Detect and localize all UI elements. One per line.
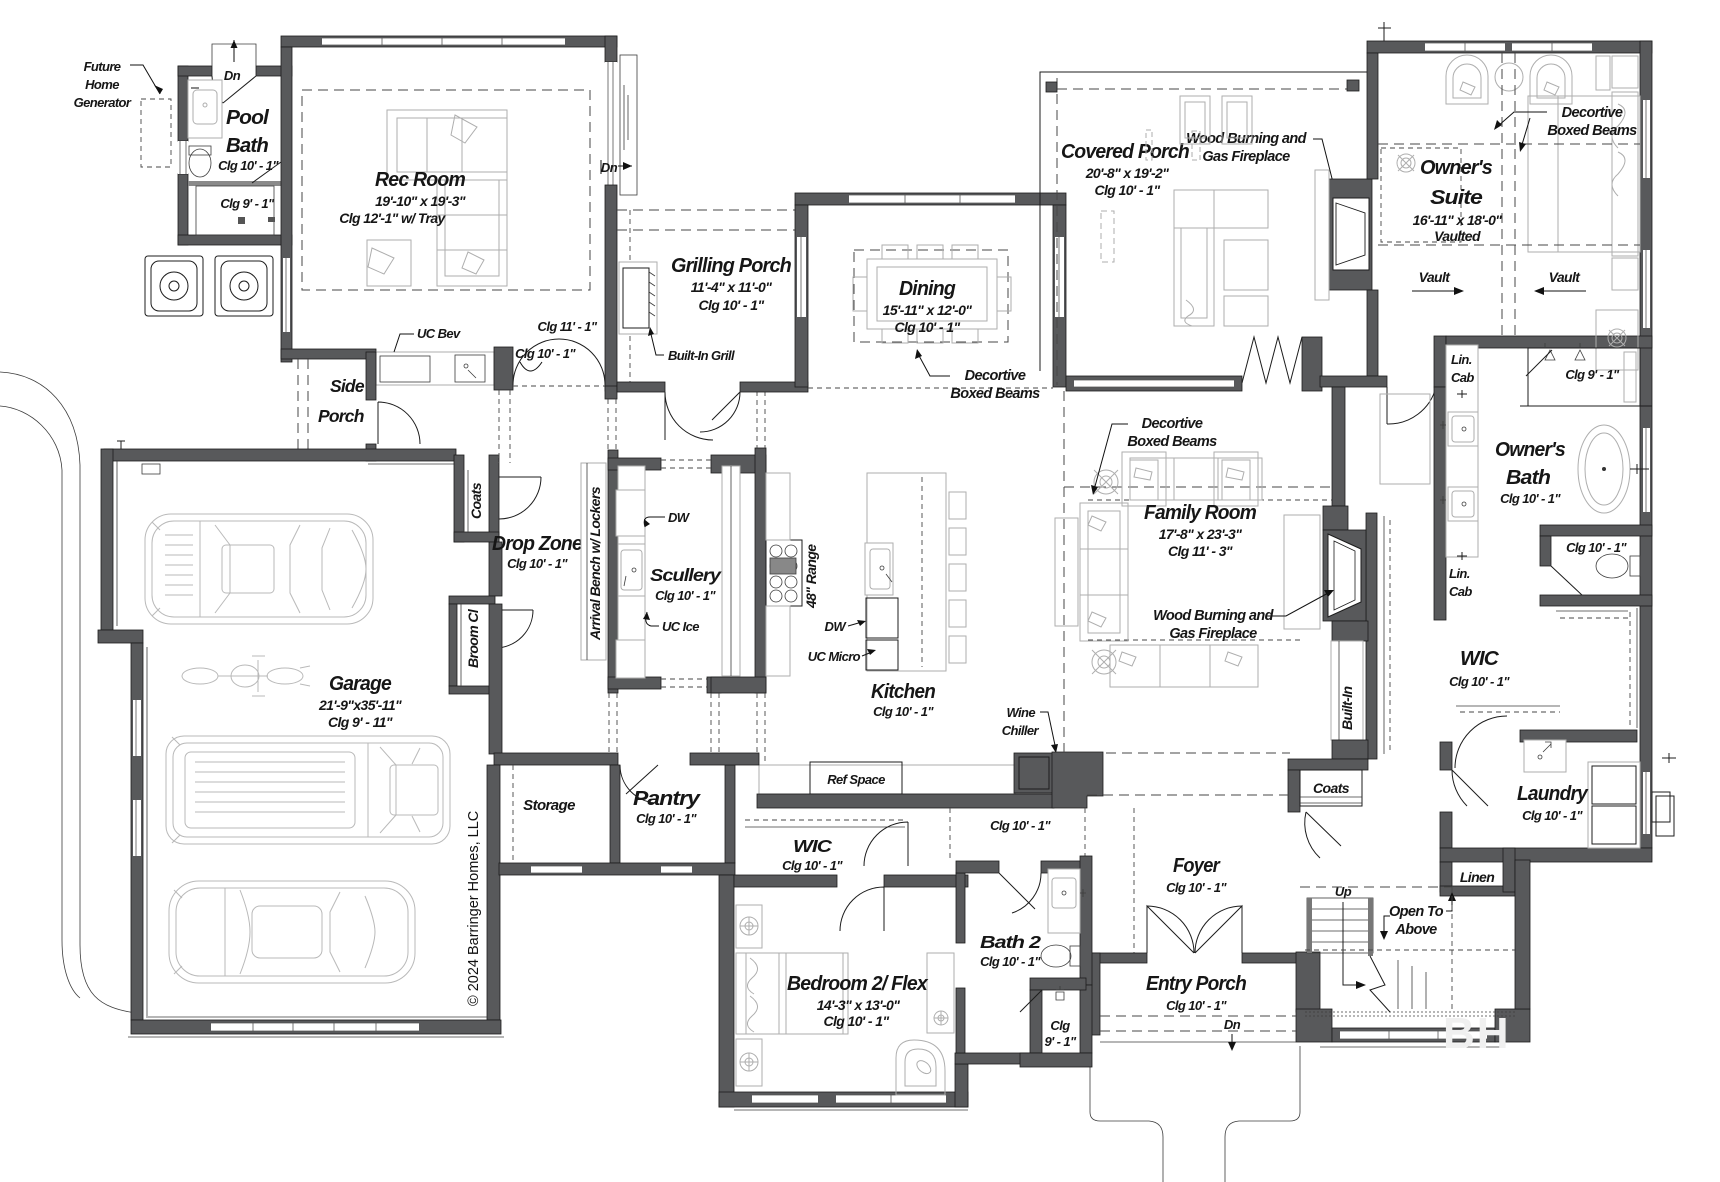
svg-text:Clg 10' - 1": Clg 10' - 1" (980, 954, 1041, 969)
svg-text:Dn: Dn (224, 68, 241, 83)
svg-text:Porch: Porch (318, 406, 364, 426)
svg-text:DW: DW (668, 510, 691, 525)
svg-text:Wine: Wine (1006, 705, 1035, 720)
svg-text:Boxed Beams: Boxed Beams (1127, 434, 1217, 450)
svg-text:Dn: Dn (1224, 1017, 1241, 1032)
svg-text:Bedroom 2/ Flex: Bedroom 2/ Flex (787, 973, 929, 995)
svg-text:Family Room: Family Room (1144, 502, 1256, 524)
svg-text:Gas Fireplace: Gas Fireplace (1169, 626, 1257, 642)
svg-text:Clg 9' - 1": Clg 9' - 1" (1565, 367, 1620, 382)
svg-text:Future: Future (84, 59, 121, 74)
svg-text:Dining: Dining (899, 278, 956, 300)
svg-text:Foyer: Foyer (1173, 855, 1221, 877)
svg-text:WIC: WIC (1460, 648, 1499, 670)
svg-text:Pool: Pool (226, 107, 269, 129)
svg-text:Clg 10' - 1": Clg 10' - 1" (1566, 540, 1627, 555)
svg-text:48" Range: 48" Range (803, 544, 819, 609)
svg-text:Coats: Coats (1313, 780, 1350, 796)
svg-text:Coats: Coats (468, 482, 484, 519)
svg-text:Decortive: Decortive (1562, 105, 1623, 121)
svg-text:Clg: Clg (1050, 1018, 1070, 1033)
svg-text:Garage: Garage (329, 673, 392, 695)
svg-text:Scullery: Scullery (650, 565, 722, 585)
svg-text:Rec Room: Rec Room (375, 169, 465, 191)
svg-text:© 2024 Barringer Homes, LLC: © 2024 Barringer Homes, LLC (466, 811, 482, 1006)
svg-text:UC Micro: UC Micro (808, 649, 861, 664)
svg-text:Covered Porch: Covered Porch (1061, 141, 1190, 163)
svg-text:Pantry: Pantry (633, 788, 701, 810)
svg-text:Broom Cl: Broom Cl (465, 608, 481, 668)
svg-text:Clg 10' - 1": Clg 10' - 1" (218, 158, 279, 173)
svg-text:Generator: Generator (74, 95, 132, 110)
svg-text:Clg 10' - 1": Clg 10' - 1" (655, 588, 716, 603)
svg-text:Clg 11' - 3": Clg 11' - 3" (1168, 543, 1233, 559)
svg-text:UC Ice: UC Ice (662, 619, 699, 634)
svg-text:Clg 10' - 1": Clg 10' - 1" (698, 297, 764, 313)
svg-text:Boxed Beams: Boxed Beams (1547, 123, 1637, 139)
svg-text:Clg 10' - 1": Clg 10' - 1" (990, 818, 1051, 833)
svg-text:9' - 1": 9' - 1" (1044, 1034, 1077, 1049)
svg-text:Clg 10' - 1": Clg 10' - 1" (873, 704, 934, 719)
svg-text:Gas Fireplace: Gas Fireplace (1202, 149, 1290, 165)
svg-text:16'-11" x 18'-0": 16'-11" x 18'-0" (1413, 212, 1503, 228)
svg-text:Clg 12'-1" w/ Tray: Clg 12'-1" w/ Tray (339, 210, 446, 226)
svg-text:Clg 11' - 1": Clg 11' - 1" (538, 319, 598, 334)
svg-text:Bath: Bath (1506, 467, 1551, 489)
svg-text:17'-8" x 23'-3": 17'-8" x 23'-3" (1159, 526, 1243, 542)
svg-text:Built-In: Built-In (1339, 687, 1355, 730)
svg-text:Clg 10' - 1": Clg 10' - 1" (1522, 808, 1583, 823)
svg-text:Clg 10' - 1": Clg 10' - 1" (782, 858, 843, 873)
svg-text:Dn: Dn (601, 160, 618, 175)
svg-text:Drop Zone: Drop Zone (492, 533, 583, 555)
svg-text:Cab: Cab (1449, 584, 1472, 599)
svg-text:Lin.: Lin. (1451, 352, 1472, 367)
svg-text:15'-11" x 12'-0": 15'-11" x 12'-0" (883, 302, 973, 318)
svg-text:Bath: Bath (226, 135, 269, 157)
svg-text:Chiller: Chiller (1002, 723, 1040, 738)
svg-text:Kitchen: Kitchen (871, 681, 936, 703)
svg-text:Grilling Porch: Grilling Porch (671, 255, 792, 277)
svg-text:Entry Porch: Entry Porch (1146, 973, 1247, 995)
svg-text:Home: Home (85, 77, 119, 92)
svg-text:20'-8" x 19'-2": 20'-8" x 19'-2" (1085, 165, 1170, 181)
svg-text:Up: Up (1335, 884, 1352, 899)
svg-text:Wood Burning and: Wood Burning and (1153, 608, 1275, 624)
svg-text:14'-3" x 13'-0": 14'-3" x 13'-0" (817, 997, 901, 1013)
svg-text:Linen: Linen (1460, 869, 1494, 885)
svg-text:Side: Side (330, 376, 365, 396)
svg-text:Clg 10' - 1": Clg 10' - 1" (823, 1013, 889, 1029)
svg-text:Clg 10' - 1": Clg 10' - 1" (1166, 880, 1227, 895)
svg-text:Arrival Bench w/ Lockers: Arrival Bench w/ Lockers (587, 486, 603, 641)
svg-text:Lin.: Lin. (1449, 566, 1470, 581)
svg-text:Decortive: Decortive (965, 368, 1026, 384)
svg-text:Decortive: Decortive (1142, 416, 1203, 432)
svg-text:Laundry: Laundry (1517, 783, 1589, 805)
svg-text:Open To: Open To (1389, 904, 1444, 920)
svg-text:Boxed Beams: Boxed Beams (950, 386, 1040, 402)
svg-text:Clg 10' - 1": Clg 10' - 1" (1166, 998, 1227, 1013)
svg-text:Above: Above (1394, 922, 1437, 938)
svg-text:Vault: Vault (1419, 269, 1452, 285)
svg-text:Owner's: Owner's (1420, 157, 1493, 179)
svg-text:Clg 10' - 1": Clg 10' - 1" (1094, 182, 1160, 198)
svg-text:Clg 10' - 1": Clg 10' - 1" (1449, 674, 1510, 689)
svg-text:Owner's: Owner's (1495, 439, 1566, 461)
svg-text:BH: BH (1443, 1009, 1511, 1058)
svg-text:Cab: Cab (1451, 370, 1474, 385)
svg-text:WIC: WIC (793, 836, 832, 856)
svg-text:Clg 10' - 1": Clg 10' - 1" (1500, 491, 1561, 506)
svg-text:19'-10" x 19'-3": 19'-10" x 19'-3" (375, 193, 466, 209)
svg-text:21'-9"x35'-11": 21'-9"x35'-11" (318, 697, 402, 713)
svg-text:11'-4" x 11'-0": 11'-4" x 11'-0" (691, 279, 772, 295)
svg-text:Clg 10' - 1": Clg 10' - 1" (636, 811, 697, 826)
svg-text:Built-In Grill: Built-In Grill (668, 348, 735, 363)
svg-text:Clg 9' - 11": Clg 9' - 11" (328, 714, 393, 730)
svg-text:Clg 10' - 1": Clg 10' - 1" (515, 346, 576, 361)
svg-text:Suite: Suite (1430, 187, 1483, 209)
svg-text:Vaulted: Vaulted (1434, 228, 1481, 244)
svg-text:Bath 2: Bath 2 (980, 932, 1041, 952)
svg-text:Ref Space: Ref Space (827, 772, 885, 787)
svg-text:Clg 10' - 1": Clg 10' - 1" (507, 556, 568, 571)
svg-text:Storage: Storage (523, 797, 575, 814)
svg-text:Clg 10' - 1": Clg 10' - 1" (894, 319, 960, 335)
svg-text:Vault: Vault (1549, 269, 1582, 285)
svg-text:UC Bev: UC Bev (417, 326, 461, 341)
svg-text:Clg 9' - 1": Clg 9' - 1" (220, 196, 275, 211)
svg-text:DW: DW (825, 619, 848, 634)
